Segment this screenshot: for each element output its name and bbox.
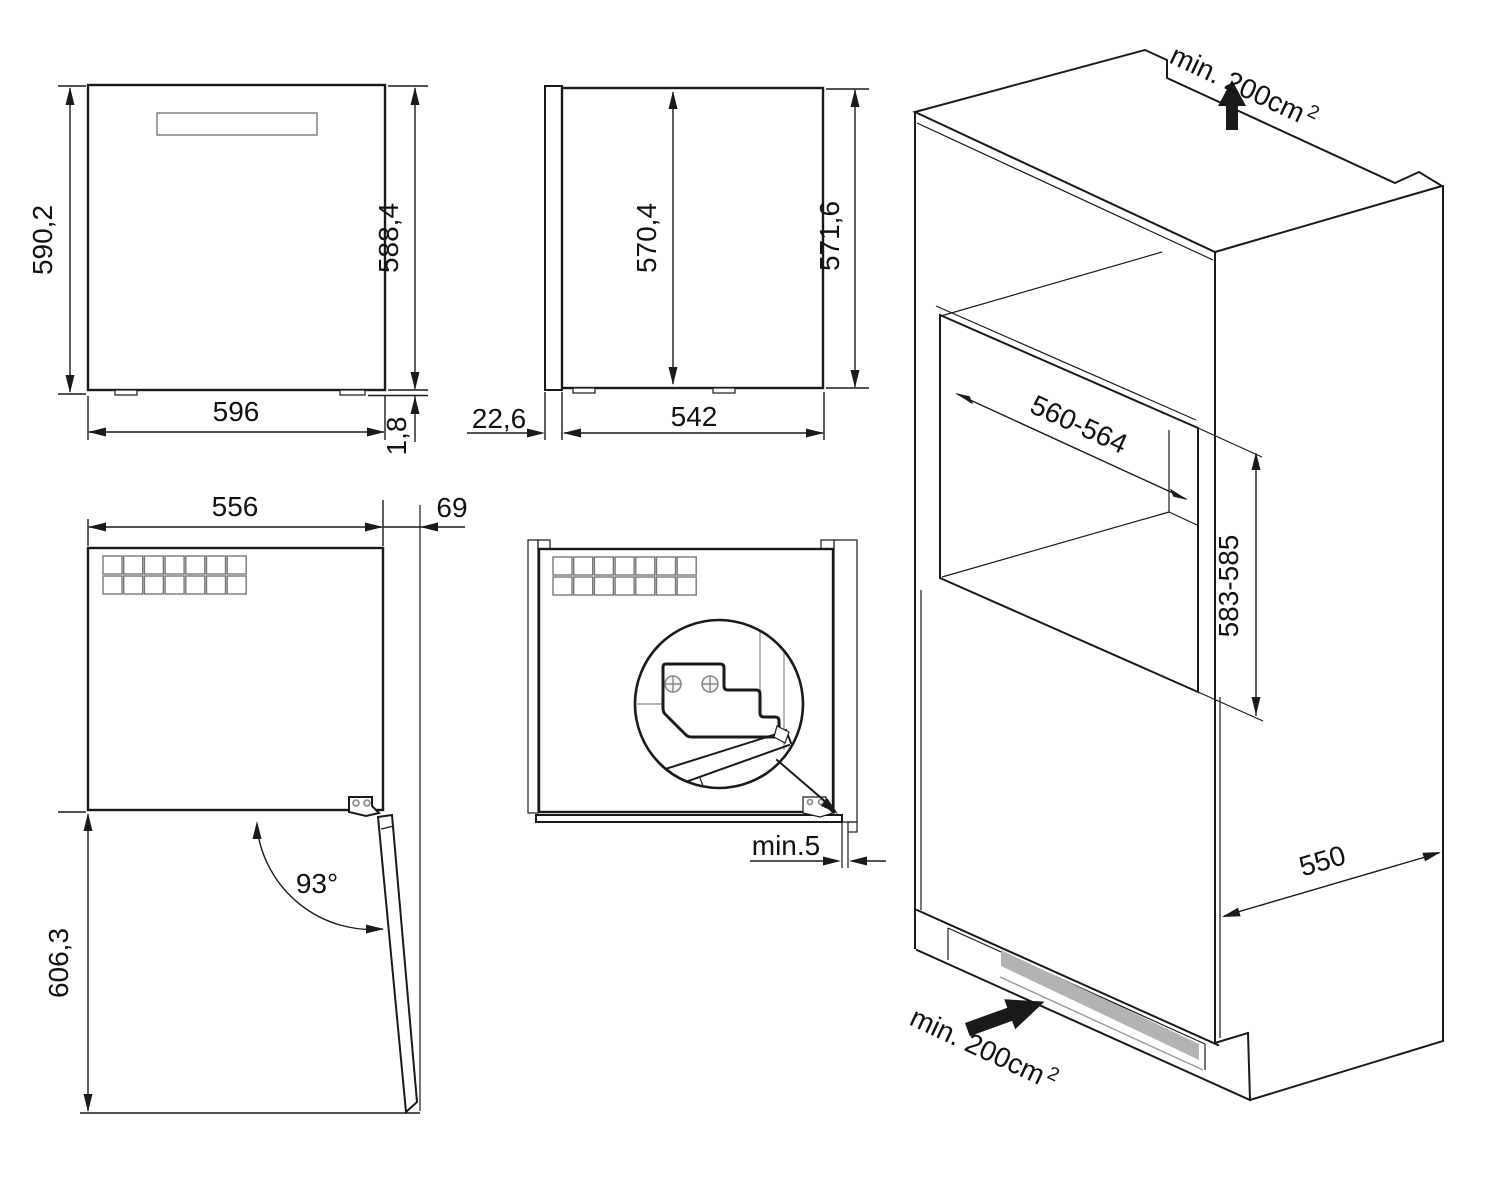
niche-opening (940, 315, 1198, 692)
cabinet-wall-left (528, 540, 538, 813)
dim-door-angle: 93° (296, 868, 338, 899)
foot-right (340, 390, 365, 395)
dim-open-depth: 606,3 (43, 928, 74, 998)
spacer-tab-left (538, 540, 550, 549)
cabinet-isometric-view: 560-564 583-585 550 min. 200cm2 min. 200… (905, 38, 1443, 1100)
dim-top-body-width: 556 (212, 491, 259, 522)
cabinet-wall-right (834, 540, 857, 822)
dim-front-height-body: 588,4 (373, 203, 404, 273)
foot-left (115, 390, 137, 395)
foot-left (573, 388, 595, 393)
installation-diagram: 590,2 588,4 1,8 596 570,4 (0, 0, 1500, 1199)
open-door (378, 815, 417, 1112)
closed-door-strip (536, 815, 842, 822)
bottom-vent-label: min. 200cm2 (905, 1000, 1062, 1096)
door-section (545, 86, 562, 390)
cabinet-wall-right-step (848, 822, 857, 832)
dim-front-width: 596 (213, 396, 260, 427)
dim-side-inner-height: 570,4 (631, 203, 662, 273)
dim-niche-height: 583-585 (1213, 535, 1244, 638)
dim-side-body-depth: 542 (671, 401, 718, 432)
appliance-side-outline (562, 88, 823, 388)
appliance-top-outline (88, 548, 383, 810)
front-view: 590,2 588,4 1,8 596 (27, 85, 428, 455)
dim-door-offset: 69 (436, 492, 467, 523)
installed-top-view: min.5 (528, 540, 886, 868)
display-panel (157, 113, 317, 135)
top-view-open: 93° 556 69 606,3 (43, 491, 468, 1113)
dim-depth: 550 (1296, 839, 1350, 882)
side-view: 570,4 571,6 22,6 542 (467, 86, 869, 440)
dim-front-height-total: 590,2 (27, 205, 58, 275)
dim-side-door-depth: 22,6 (472, 403, 527, 434)
diagram-canvas: 590,2 588,4 1,8 596 570,4 (0, 0, 1500, 1199)
foot-right (713, 388, 735, 393)
cabinet-top-face (915, 50, 1442, 252)
dim-side-gap: min.5 (752, 830, 820, 861)
spacer-tab-right (821, 540, 834, 549)
dim-side-total-height: 571,6 (814, 201, 845, 271)
